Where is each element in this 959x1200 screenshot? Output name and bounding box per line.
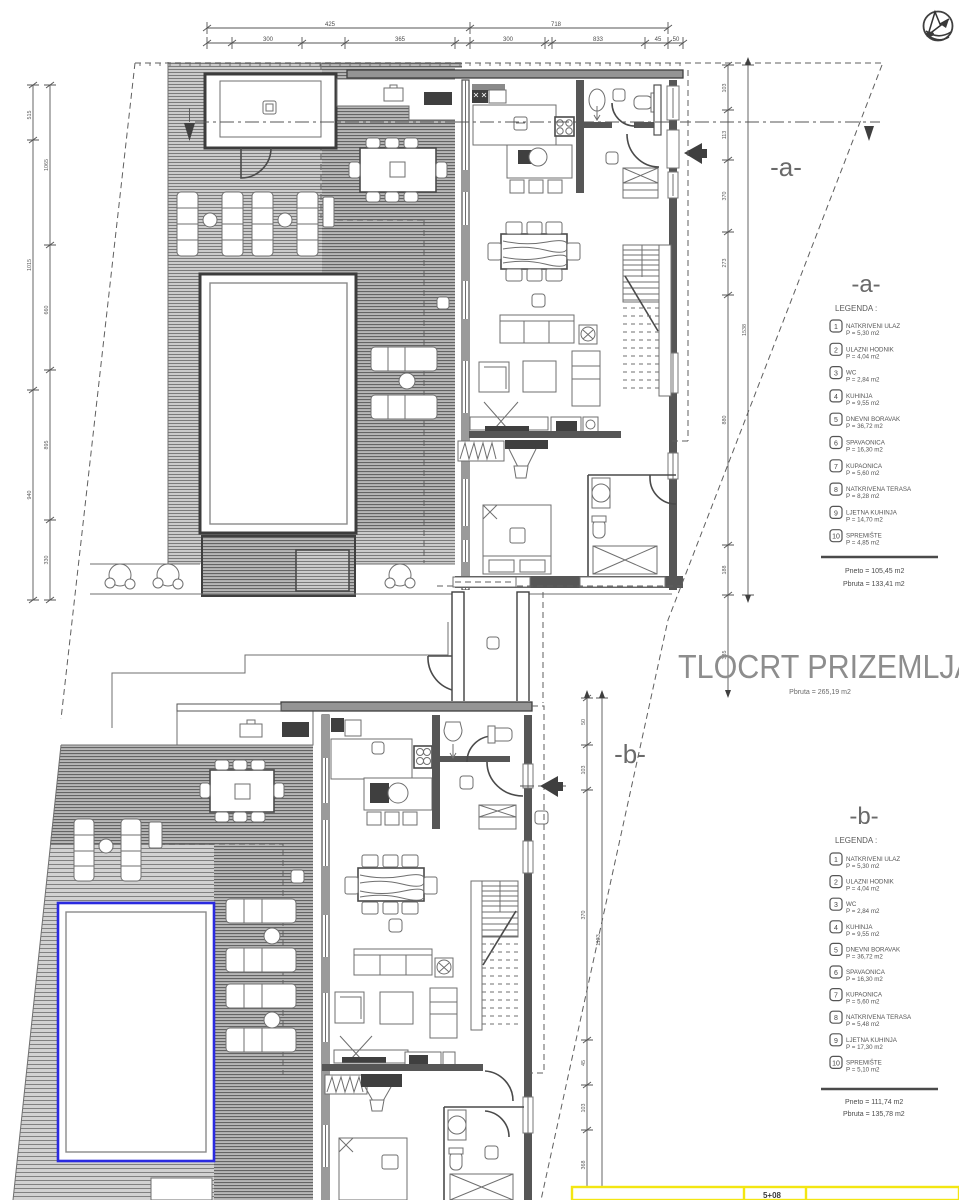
svg-text:6: 6 [834, 441, 838, 448]
svg-text:5: 5 [834, 417, 838, 424]
svg-text:300: 300 [263, 37, 274, 43]
svg-text:NATKRIVENA TERASA: NATKRIVENA TERASA [846, 1014, 912, 1021]
svg-text:833: 833 [593, 37, 604, 43]
svg-text:895: 895 [44, 441, 50, 450]
svg-text:P = 36,72 m2: P = 36,72 m2 [846, 423, 883, 430]
svg-text:425: 425 [325, 22, 336, 28]
svg-text:5+08: 5+08 [763, 1191, 782, 1200]
svg-text:DNEVNI BORAVAK: DNEVNI BORAVAK [846, 416, 901, 423]
svg-text:LEGENDA :: LEGENDA : [835, 304, 877, 313]
svg-text:KUPAONICA: KUPAONICA [846, 992, 883, 999]
svg-text:7: 7 [834, 464, 838, 471]
svg-text:113: 113 [722, 131, 728, 140]
svg-text:188: 188 [722, 566, 728, 575]
svg-text:10: 10 [832, 1060, 840, 1067]
svg-text:940: 940 [27, 491, 33, 500]
svg-text:P = 8,28 m2: P = 8,28 m2 [846, 493, 880, 500]
svg-text:P = 16,30 m2: P = 16,30 m2 [846, 447, 883, 454]
svg-text:45: 45 [581, 1060, 587, 1066]
svg-text:1: 1 [834, 857, 838, 864]
svg-text:3: 3 [834, 902, 838, 909]
svg-text:300: 300 [503, 37, 514, 43]
svg-text:880: 880 [722, 416, 728, 425]
svg-text:WC: WC [846, 370, 857, 377]
svg-text:Pbruta = 265,19 m2: Pbruta = 265,19 m2 [789, 689, 851, 696]
svg-text:-b-: -b- [849, 803, 878, 830]
svg-text:370: 370 [581, 911, 587, 920]
svg-text:1015: 1015 [27, 259, 33, 271]
svg-text:660: 660 [44, 306, 50, 315]
svg-text:P = 5,10 m2: P = 5,10 m2 [846, 1066, 880, 1073]
svg-text:SPREMIŠTE: SPREMIŠTE [846, 533, 882, 540]
svg-text:8: 8 [834, 487, 838, 494]
svg-text:ULAZNI HODNIK: ULAZNI HODNIK [846, 346, 895, 353]
svg-text:P = 4,85 m2: P = 4,85 m2 [846, 540, 880, 547]
svg-text:Pbruta = 135,78 m2: Pbruta = 135,78 m2 [843, 1111, 905, 1118]
svg-text:P = 36,72 m2: P = 36,72 m2 [846, 953, 883, 960]
svg-text:8: 8 [834, 1015, 838, 1022]
svg-text:P = 2,84 m2: P = 2,84 m2 [846, 908, 880, 915]
svg-text:-b-: -b- [614, 739, 646, 769]
svg-text:515: 515 [27, 111, 33, 120]
svg-text:DNEVNI BORAVAK: DNEVNI BORAVAK [846, 946, 901, 953]
svg-text:45: 45 [655, 37, 662, 43]
svg-text:368: 368 [581, 1161, 587, 1170]
svg-text:LEGENDA :: LEGENDA : [835, 836, 877, 845]
svg-text:5: 5 [834, 947, 838, 954]
svg-text:ULAZNI HODNIK: ULAZNI HODNIK [846, 879, 895, 886]
svg-text:1: 1 [834, 324, 838, 331]
svg-text:718: 718 [551, 22, 562, 28]
svg-text:4: 4 [834, 925, 838, 932]
svg-text:50: 50 [581, 719, 587, 725]
svg-text:P = 5,30 m2: P = 5,30 m2 [846, 863, 880, 870]
svg-text:9: 9 [834, 510, 838, 517]
svg-text:-a-: -a- [851, 271, 880, 298]
svg-text:P = 9,55 m2: P = 9,55 m2 [846, 931, 880, 938]
svg-text:103: 103 [581, 766, 587, 775]
svg-text:9: 9 [834, 1038, 838, 1045]
svg-text:-a-: -a- [770, 152, 802, 182]
svg-text:330: 330 [44, 556, 50, 565]
svg-text:P = 5,60 m2: P = 5,60 m2 [846, 999, 880, 1006]
svg-text:6: 6 [834, 970, 838, 977]
svg-text:KUHINJA: KUHINJA [846, 924, 873, 931]
svg-text:WC: WC [846, 901, 857, 908]
svg-text:365: 365 [395, 37, 406, 43]
svg-text:103: 103 [581, 1104, 587, 1113]
svg-text:NATKRIVENI ULAZ: NATKRIVENI ULAZ [846, 856, 900, 863]
svg-text:4: 4 [834, 394, 838, 401]
svg-text:KUPAONICA: KUPAONICA [846, 463, 883, 470]
svg-text:50: 50 [673, 37, 680, 43]
svg-text:LJETNA KUHINJA: LJETNA KUHINJA [846, 509, 898, 516]
svg-text:P = 9,55 m2: P = 9,55 m2 [846, 400, 880, 407]
svg-text:P = 16,30 m2: P = 16,30 m2 [846, 976, 883, 983]
svg-text:Pbruta = 133,41 m2: Pbruta = 133,41 m2 [843, 581, 905, 588]
svg-text:P = 17,30 m2: P = 17,30 m2 [846, 1044, 883, 1051]
svg-text:7: 7 [834, 993, 838, 1000]
svg-text:3: 3 [834, 371, 838, 378]
svg-text:P = 2,84 m2: P = 2,84 m2 [846, 377, 880, 384]
svg-text:SPAVAONICA: SPAVAONICA [846, 969, 886, 976]
svg-text:P = 4,04 m2: P = 4,04 m2 [846, 886, 880, 893]
svg-text:1538: 1538 [742, 324, 748, 336]
svg-text:2: 2 [834, 880, 838, 887]
svg-text:SPAVAONICA: SPAVAONICA [846, 440, 886, 447]
svg-text:LJETNA KUHINJA: LJETNA KUHINJA [846, 1037, 898, 1044]
svg-text:10: 10 [832, 534, 840, 541]
svg-text:P = 5,60 m2: P = 5,60 m2 [846, 470, 880, 477]
svg-text:SPREMIŠTE: SPREMIŠTE [846, 1059, 882, 1066]
svg-text:P = 5,30 m2: P = 5,30 m2 [846, 330, 880, 337]
svg-text:NATKRIVENA TERASA: NATKRIVENA TERASA [846, 486, 912, 493]
svg-text:103: 103 [722, 84, 728, 93]
svg-text:1065: 1065 [44, 159, 50, 171]
svg-text:2: 2 [834, 347, 838, 354]
svg-text:370: 370 [722, 192, 728, 201]
svg-text:Pneto = 111,74 m2: Pneto = 111,74 m2 [845, 1099, 903, 1106]
svg-text:P = 14,70 m2: P = 14,70 m2 [846, 516, 883, 523]
svg-text:TLOCRT PRIZEMLJA: TLOCRT PRIZEMLJA [678, 649, 959, 686]
svg-text:P = 4,04 m2: P = 4,04 m2 [846, 353, 880, 360]
svg-text:1133: 1133 [596, 934, 602, 946]
svg-text:NATKRIVENI ULAZ: NATKRIVENI ULAZ [846, 323, 900, 330]
svg-text:Pneto = 105,45 m2: Pneto = 105,45 m2 [845, 568, 904, 575]
svg-text:KUHINJA: KUHINJA [846, 393, 873, 400]
svg-text:273: 273 [722, 259, 728, 268]
svg-text:P = 5,48 m2: P = 5,48 m2 [846, 1021, 880, 1028]
